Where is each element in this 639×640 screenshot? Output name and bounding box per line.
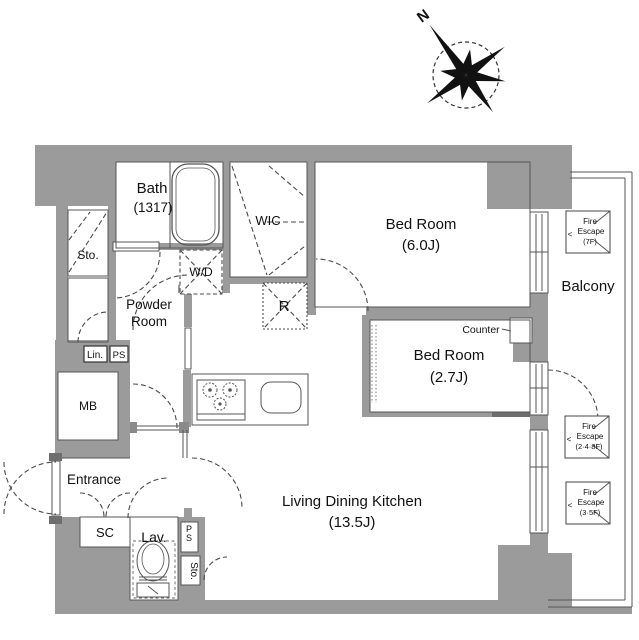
bathtub (172, 164, 219, 245)
bath-sliding-door (113, 242, 159, 251)
fire-escape-label: Fire (582, 422, 596, 431)
pipe-space-upper-label: PS (113, 350, 126, 361)
fire-escape-hatch-3-5f: < Fire Escape (3·5F) (566, 482, 610, 524)
bedroom2-outline (370, 320, 530, 412)
compass-north-needle (426, 22, 470, 77)
bath-label: Bath (137, 180, 168, 197)
fire-escape-hatch-7f: < Fire Escape (7F) (566, 211, 610, 253)
wall-bottom (55, 600, 572, 614)
refrigerator-label: R (279, 298, 290, 315)
lavatory-label: Lav. (141, 529, 166, 545)
escape-arrow-icon: < (567, 435, 572, 444)
storage-upper-label: Sto. (77, 248, 98, 262)
washer-dryer-label: W/D (189, 265, 213, 279)
entrance-label: Entrance (67, 472, 121, 487)
bedroom1-door-arc (316, 259, 368, 311)
shoe-closet-door-arc-left (80, 493, 104, 517)
escape-arrow-icon: < (568, 501, 573, 510)
closet-outline (68, 278, 108, 342)
closet-door-arc (78, 312, 108, 342)
bath-size-label: (1317) (133, 200, 172, 215)
bedroom2-label: Bed Room (414, 347, 485, 364)
ldk-label: Living Dining Kitchen (282, 493, 422, 510)
wic-label: WIC (255, 213, 280, 228)
fire-escape-label: Fire (583, 488, 597, 497)
balcony-door-arc (548, 370, 598, 420)
bedroom1-size-label: (6.0J) (402, 237, 440, 254)
fire-escape-label: (3·5F) (580, 508, 601, 517)
wall-bed2-top (362, 313, 513, 320)
meter-box-label: MB (79, 399, 97, 413)
wall-counter-back (532, 318, 548, 343)
counter-label: Counter (462, 324, 500, 336)
wall-step-3 (548, 553, 572, 600)
pipe-space-lower-label: PS (186, 524, 192, 543)
escape-arrow-icon: < (568, 230, 573, 239)
wall-window-pier-3 (530, 415, 548, 430)
storage-shelf-mark (69, 212, 107, 272)
wall-bed2-left (362, 320, 370, 415)
window-bed1 (530, 212, 548, 293)
powder-room-label-2: Room (131, 314, 167, 329)
kitchen-counter (192, 374, 308, 425)
north-label: N (414, 6, 433, 26)
storage-shelf-mark (69, 212, 90, 240)
entrance-door-leaf (52, 461, 60, 515)
wall-hall-2 (183, 370, 191, 427)
hall-door-leaf (185, 328, 191, 369)
corridor-door-arc (133, 384, 177, 428)
storage-lower-label: Sto. (188, 562, 199, 580)
wall-step-2 (530, 533, 548, 600)
wall-powder-left (108, 205, 116, 345)
window-bed2 (530, 362, 548, 415)
entrance-door-arc-2 (4, 462, 56, 514)
ldk-door-arc (192, 458, 242, 508)
linen-label: Lin. (87, 350, 103, 361)
powder-door-arc (114, 252, 160, 298)
ldk-size-label: (13.5J) (329, 514, 376, 531)
shoe-closet-door-arc-right (106, 493, 130, 517)
powder-room-label: Powder (126, 297, 172, 312)
wall-step-1 (498, 545, 531, 600)
fire-escape-label: Escape (577, 432, 604, 441)
fire-escape-hatch-2-4-8f: < Fire Escape (2·4·8F) (565, 416, 609, 458)
wall-hall-3 (184, 508, 192, 517)
window-ldk (530, 430, 548, 533)
entrance-door-arc-1 (4, 462, 56, 514)
counter-box (510, 318, 532, 343)
wall-top-left-block (35, 148, 116, 206)
wall-bath-wic (223, 162, 230, 293)
lavatory-door-arc (128, 478, 168, 518)
fire-escape-label: Escape (578, 498, 605, 507)
fire-escape-label: (2·4·8F) (575, 442, 603, 451)
balcony-label: Balcony (561, 278, 615, 295)
fire-escape-label: Fire (583, 217, 597, 226)
wic-shelf-mark (269, 166, 305, 197)
toilet (133, 541, 175, 598)
shoe-closet-label: SC (96, 525, 114, 540)
bed1-door-opening (316, 307, 366, 315)
floor-plan: < Fire Escape (7F) < Fire Escape (2·4·8F… (0, 0, 639, 640)
fire-escape-label: Escape (578, 227, 605, 236)
wic-shelf-mark (269, 246, 305, 275)
storage-lower-door-arc (204, 557, 227, 580)
wall-bed1-left (307, 162, 315, 315)
bedroom1-label: Bed Room (386, 216, 457, 233)
wall-left (56, 205, 68, 345)
corridor-post-1 (130, 422, 137, 433)
fire-escape-label: (7F) (583, 237, 597, 246)
wall-under-balcony (572, 607, 632, 614)
wall-bed2-bottom-dark (492, 412, 530, 417)
compass-rose: N (380, 0, 532, 140)
wall-hall-1 (184, 293, 192, 327)
bedroom2-size-label: (2.7J) (430, 369, 468, 386)
sink (261, 382, 301, 413)
